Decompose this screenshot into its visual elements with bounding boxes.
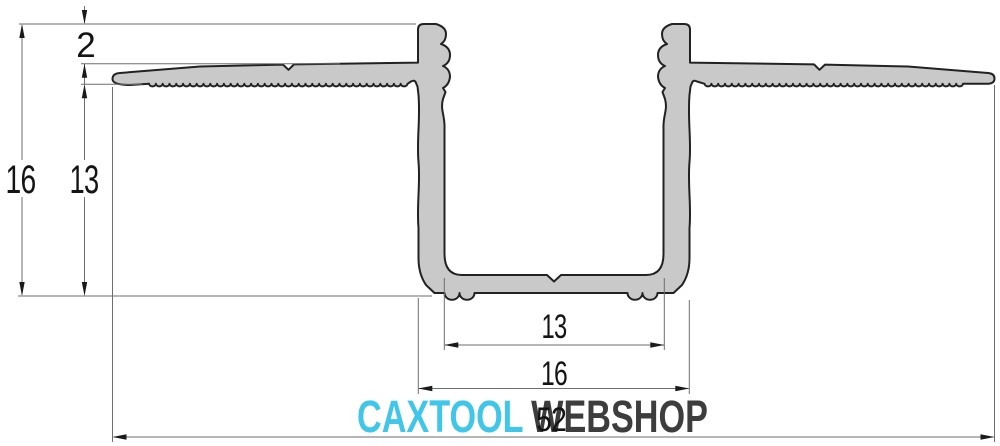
dimension-arrowhead [19, 282, 24, 296]
dimension-arrowhead [19, 24, 24, 38]
dimension-arrowhead [82, 64, 87, 78]
drawing-canvas: CAXTOOLWEBSHOP 21613131652 [0, 0, 1000, 446]
profile-technical-drawing: 21613131652 [0, 0, 1000, 446]
dimension-arrowhead [82, 84, 87, 98]
dimension-label-height-below-flange: 13 [70, 158, 99, 202]
dimension-label-wall-protrusion: 2 [76, 26, 94, 65]
dimension-arrowhead [981, 434, 995, 439]
dimension-arrowhead [82, 282, 87, 296]
dimension-label-inner-width: 13 [542, 308, 567, 346]
dimension-labels: 21613131652 [6, 26, 568, 439]
dimension-label-total-width: 52 [536, 401, 566, 439]
dimension-arrowhead [650, 342, 664, 347]
dimension-label-channel-outer-width: 16 [541, 355, 567, 393]
dimension-arrowhead [675, 386, 689, 391]
dimension-arrowhead [82, 10, 87, 24]
aluminium-profile-outline [113, 24, 995, 300]
dimension-label-height-total: 16 [6, 158, 36, 202]
dimension-arrowhead [113, 434, 127, 439]
profile-cross-section [113, 24, 995, 300]
dimension-arrowhead [444, 342, 458, 347]
dimension-arrowhead [418, 386, 432, 391]
